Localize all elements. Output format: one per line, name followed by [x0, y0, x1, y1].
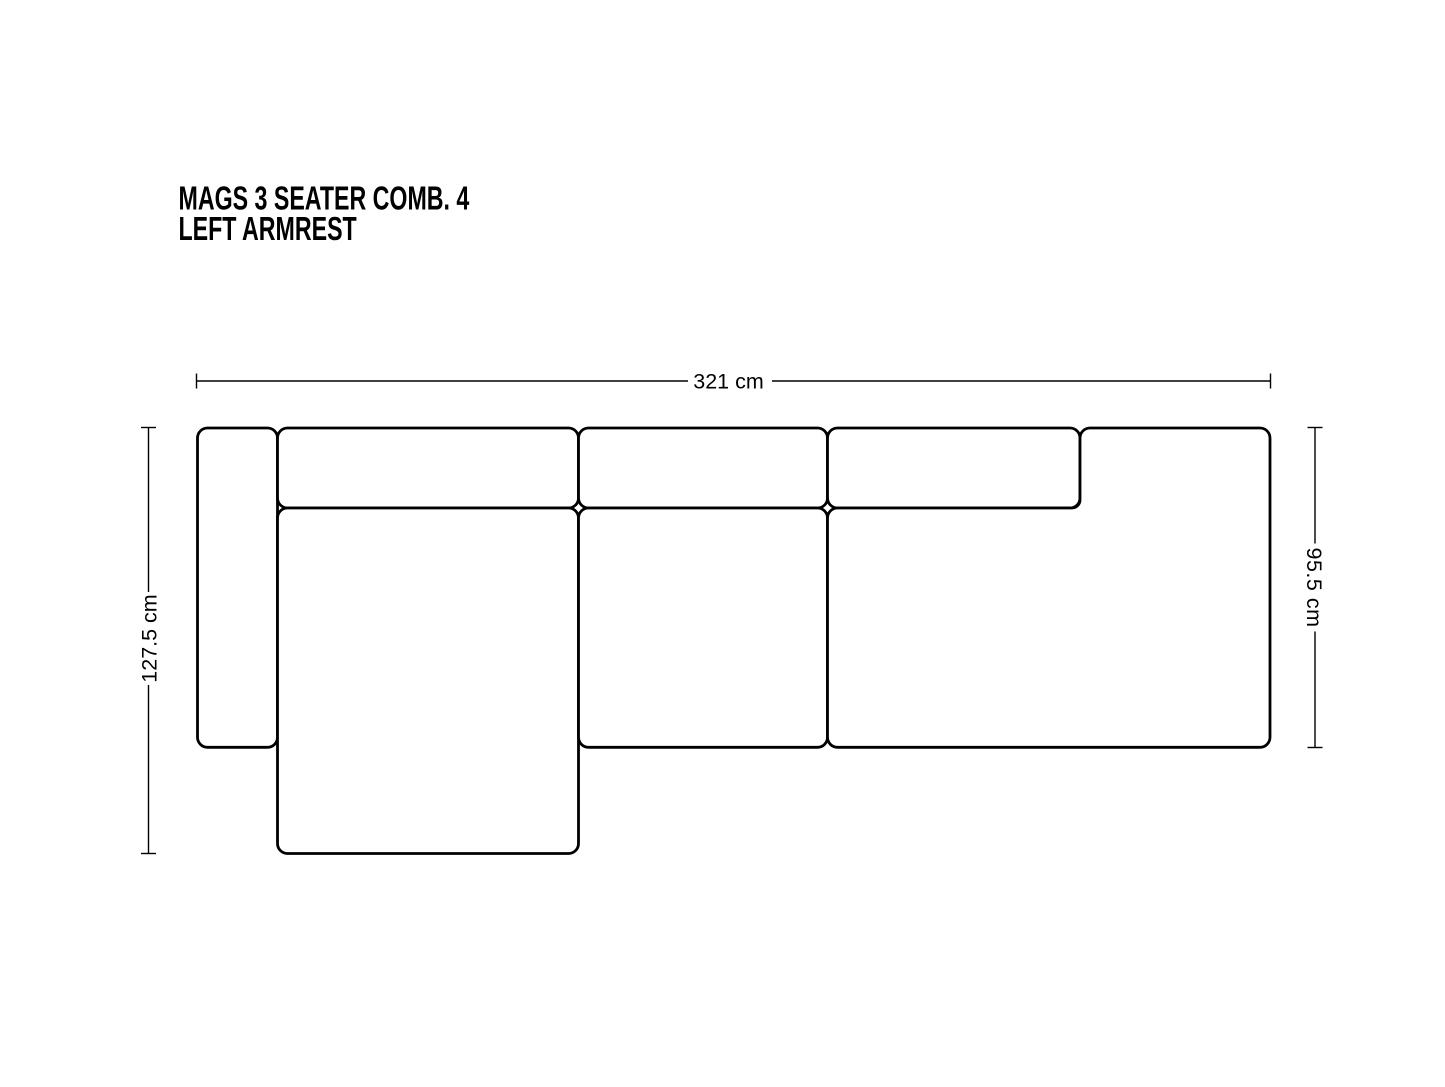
- svg-text:LEFT ARMREST: LEFT ARMREST: [179, 211, 358, 248]
- svg-text:127.5 cm: 127.5 cm: [137, 594, 161, 682]
- svg-text:321 cm: 321 cm: [693, 370, 764, 394]
- svg-text:95.5 cm: 95.5 cm: [1302, 548, 1326, 628]
